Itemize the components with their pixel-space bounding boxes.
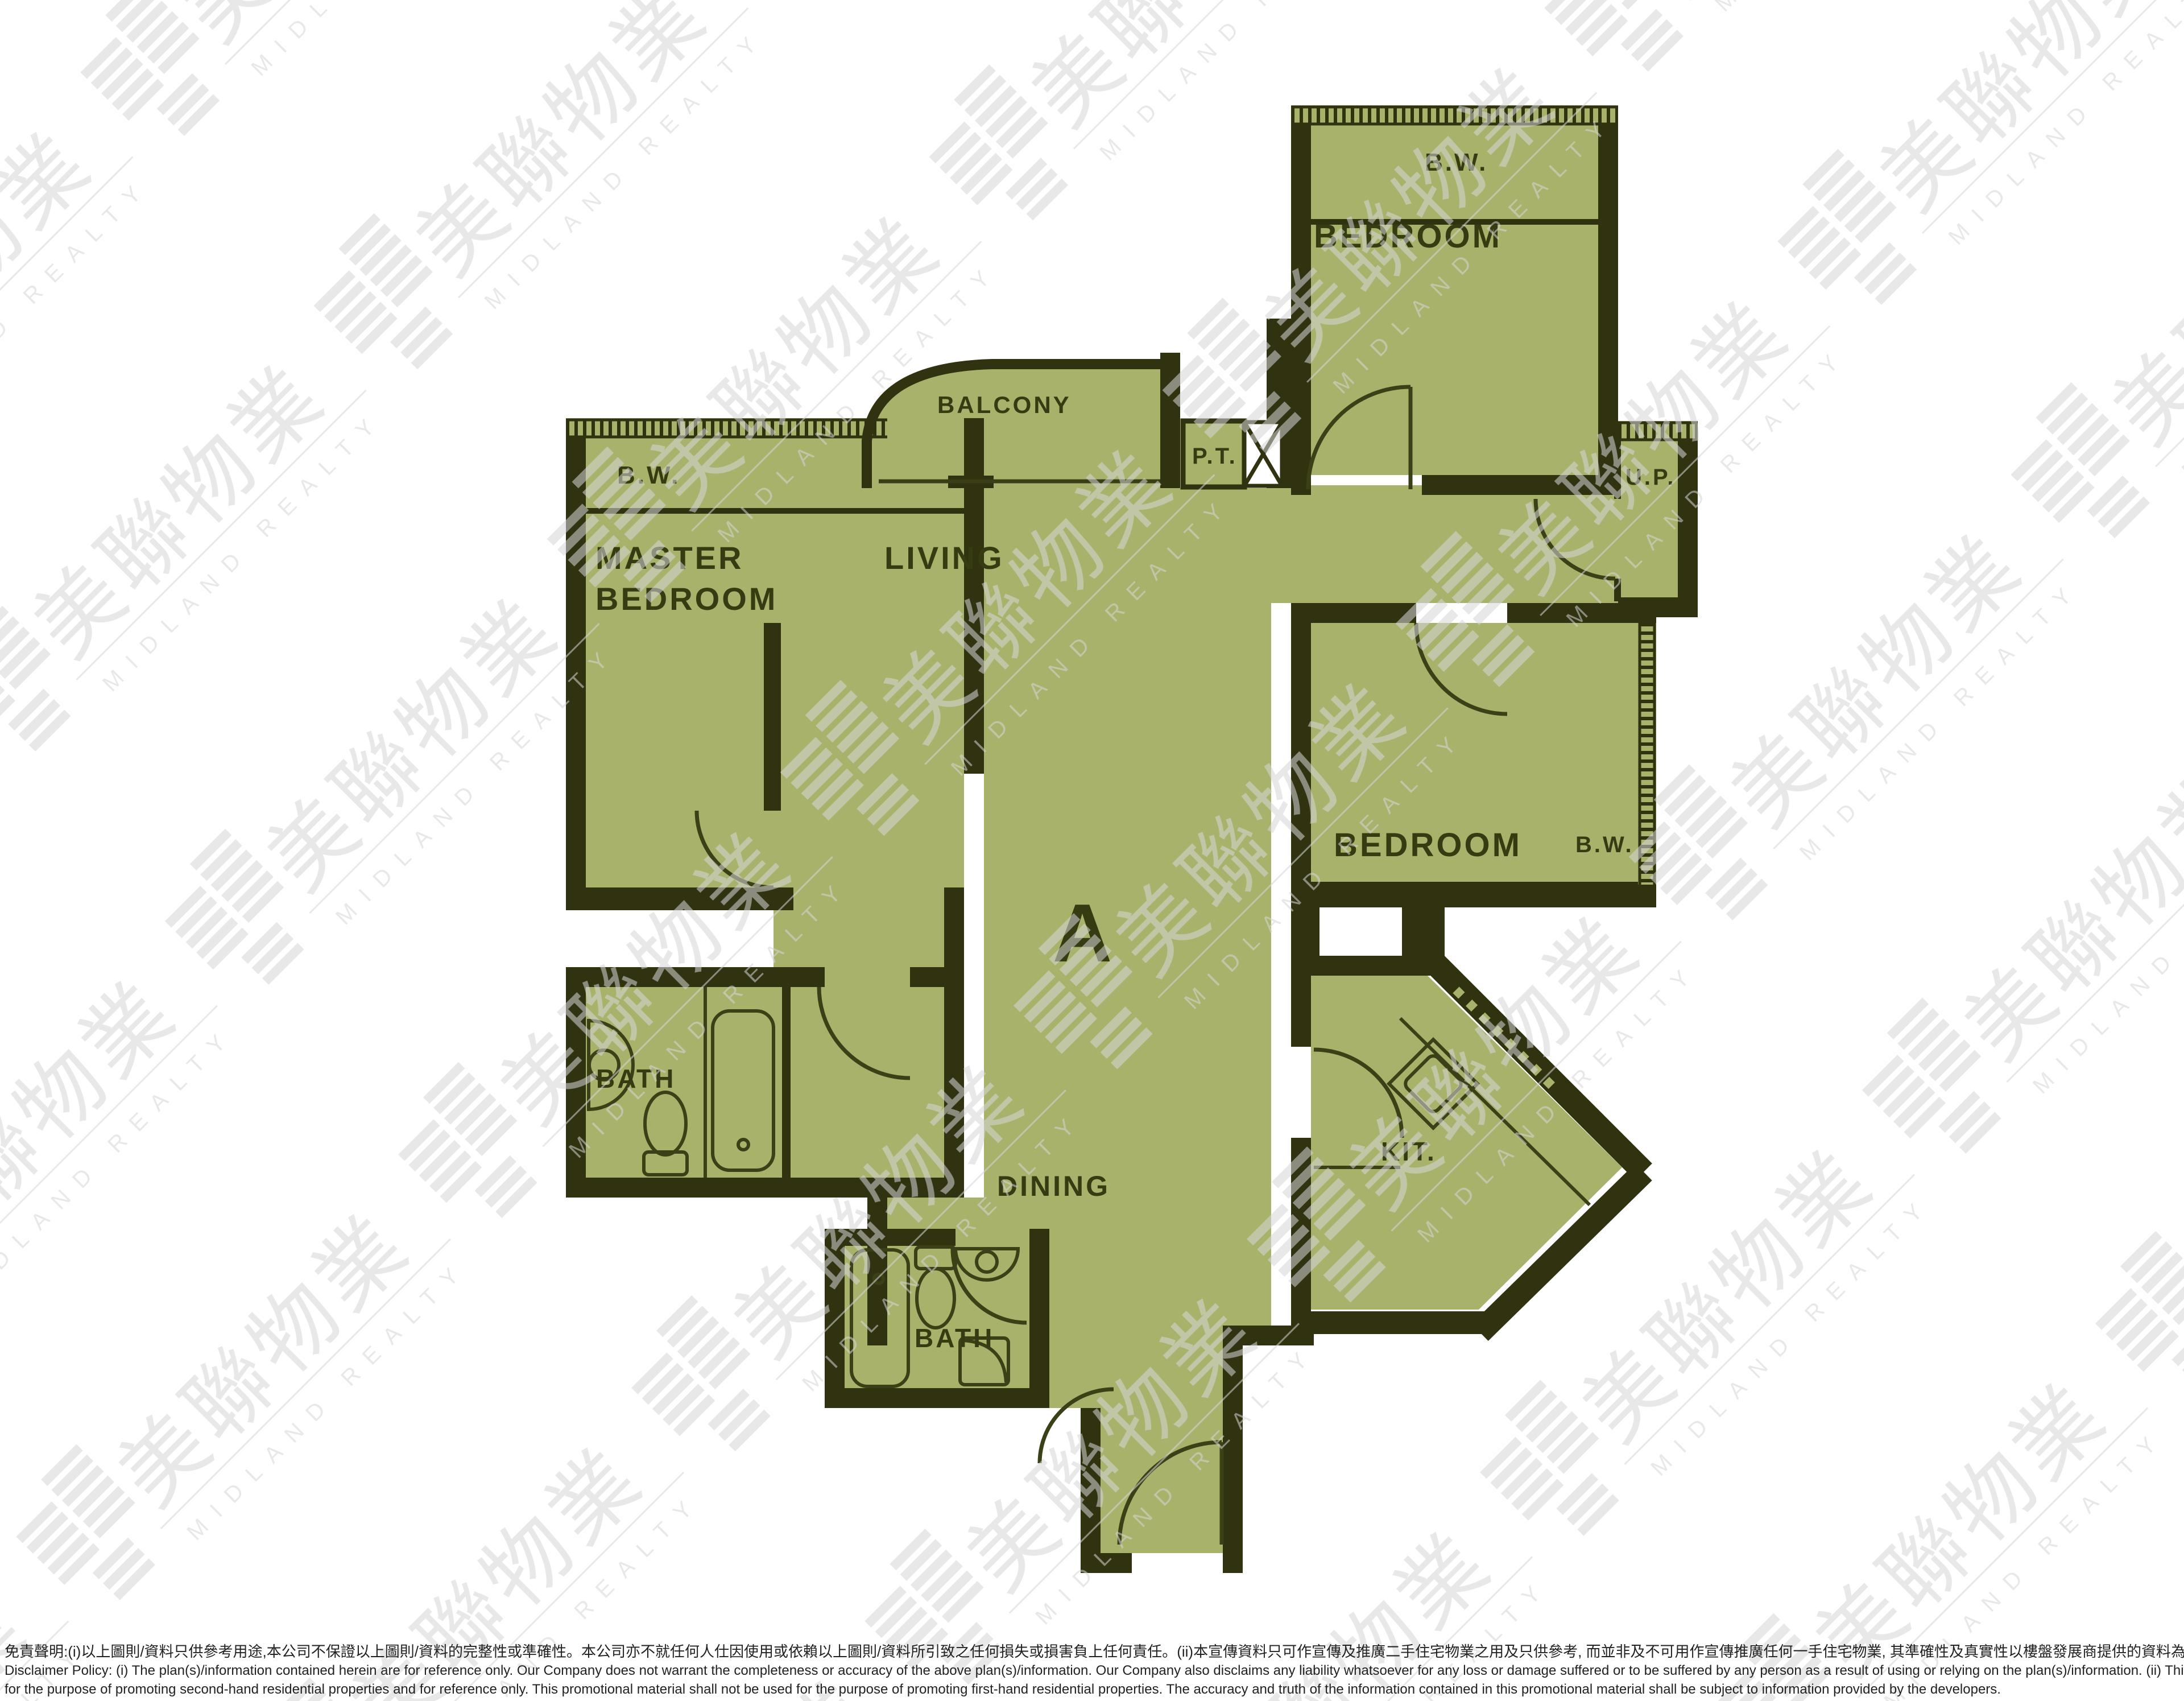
disclaimer-line-zh: 免責聲明:(i)以上圖則/資料只供參考用途,本公司不保證以上圖則/資料的完整性或… — [5, 1642, 2184, 1661]
disclaimer: 免責聲明:(i)以上圖則/資料只供參考用途,本公司不保證以上圖則/資料的完整性或… — [5, 1642, 2184, 1699]
floor-plan-page: B.W. MASTER BEDROOM LIVING BALCONY P.T. … — [0, 0, 2184, 1701]
watermark-layer — [0, 0, 2184, 1701]
disclaimer-line-en-1: Disclaimer Policy: (i) The plan(s)/infor… — [5, 1661, 2184, 1680]
disclaimer-line-en-2: for the purpose of promoting second-hand… — [5, 1680, 2184, 1699]
floor-plan-svg: B.W. MASTER BEDROOM LIVING BALCONY P.T. … — [0, 0, 2184, 1701]
